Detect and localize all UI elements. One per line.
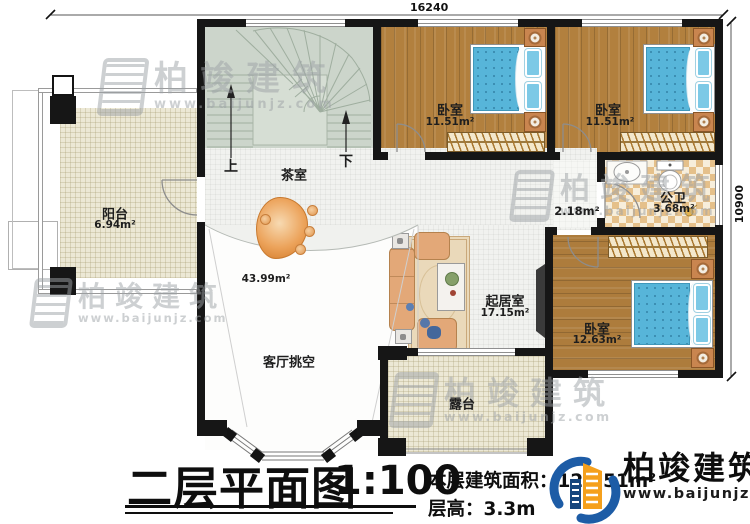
wall-living-bottom	[515, 348, 553, 356]
bedroom3-wardrobe	[608, 236, 708, 258]
bedroom1-pillow	[525, 82, 541, 110]
dimension-top: 16240	[410, 1, 448, 14]
balcony-floor	[60, 108, 197, 278]
terrace-corner-topleft	[378, 346, 407, 360]
floor-height-value: 3.3m	[484, 499, 536, 520]
bay-corner-left	[197, 420, 227, 436]
eave-line-v	[12, 90, 13, 269]
lamp-icon	[529, 116, 542, 129]
window-bathroom	[715, 165, 723, 225]
tea-room-art-dot	[295, 244, 306, 255]
bedroom3-pillow	[694, 284, 710, 312]
floor-area-label: 本层建筑面积：	[428, 471, 558, 492]
lamp-icon	[529, 31, 542, 44]
wall-bedroom3-bottom	[553, 370, 588, 378]
bedroom2-nightstand	[693, 28, 714, 47]
bedroom3-bed	[631, 280, 713, 348]
balcony-post-bottom	[50, 267, 76, 295]
label-terrace: 露台	[449, 394, 475, 413]
wall-bathroom-bottom	[545, 227, 557, 235]
window-bedroom3	[588, 370, 678, 378]
dimension-right: 10900	[733, 185, 746, 223]
sofa-main	[389, 247, 415, 331]
title-underline-2	[125, 512, 393, 514]
wall-bedroom3-left	[545, 235, 553, 455]
bedroom2-pillow	[696, 49, 711, 77]
lamp-icon	[696, 352, 709, 365]
label-bedroom1-area: 11.51m²	[426, 116, 475, 128]
bedroom1-bed	[470, 44, 546, 114]
floor-height-line: 层高：3.3m	[428, 495, 536, 521]
tea-room-art-dot	[307, 205, 318, 216]
wall-bedrooms-bottom	[425, 152, 560, 160]
label-hall-area: 2.18m²	[554, 204, 599, 218]
window-bedroom2	[582, 19, 682, 27]
bedroom3-pillow	[694, 316, 710, 344]
bedroom1-pillow	[525, 49, 541, 77]
wall-bedrooms-bottom	[373, 152, 388, 160]
bedroom1-nightstand	[524, 28, 546, 47]
bay-corner-right	[357, 420, 385, 436]
person-figure	[406, 303, 414, 311]
exterior-pad	[8, 221, 58, 270]
bedroom3-nightstand	[691, 348, 714, 368]
label-living-room-area: 17.15m²	[481, 307, 530, 319]
window-bedroom1	[418, 19, 518, 27]
label-bathroom-area: 3.68m²	[653, 203, 694, 215]
coffee-table	[437, 263, 465, 311]
balcony-column-outline	[52, 75, 74, 96]
lamp-icon	[697, 31, 710, 44]
label-bedroom2-area: 11.51m²	[586, 116, 635, 128]
label-void: 客厅挑空	[263, 352, 315, 371]
bedroom2-nightstand	[693, 112, 714, 132]
balcony-post-top	[50, 96, 76, 124]
wall-right	[715, 225, 723, 378]
wall-bedroom3-bottom	[678, 370, 723, 378]
lamp-icon	[697, 116, 710, 129]
wall-left	[197, 27, 205, 177]
label-bedroom3-area: 12.63m²	[573, 334, 622, 346]
bedroom2-pillow	[696, 82, 711, 110]
staircase-room-floor	[205, 27, 373, 160]
brand-logo: 柏竣建筑` www.baijunjz.com	[545, 452, 750, 524]
floor-plan-canvas: 柏竣建筑 www.baijunjz.com 柏竣建筑 www.baijunjz.…	[0, 0, 750, 524]
wall-bedrooms-bottom	[597, 152, 723, 160]
bedroom1-wardrobe	[447, 132, 545, 152]
side-table	[395, 329, 412, 344]
brand-logo-icon	[545, 452, 623, 524]
label-balcony-area: 6.94m²	[94, 219, 135, 231]
armchair-top	[414, 232, 450, 260]
table-plant-icon	[445, 272, 459, 286]
label-tea-room: 茶室	[281, 165, 307, 184]
person-figure	[427, 326, 441, 339]
wall-bathroom-left	[597, 160, 605, 182]
brand-name: 柏竣建筑	[623, 449, 750, 487]
window-living-terrace	[418, 348, 515, 356]
bedroom1-mattress	[473, 47, 519, 111]
tea-room-art-dot	[260, 214, 271, 225]
bedroom3-nightstand	[691, 259, 714, 279]
lamp-icon	[696, 263, 709, 276]
label-stairs-down: 下	[339, 151, 353, 171]
bedroom2-bed	[643, 44, 715, 114]
eave-line-bottom	[12, 268, 39, 269]
tea-room-art-dot	[304, 226, 315, 237]
table-flower-icon	[450, 290, 456, 296]
wall-top	[197, 19, 246, 27]
bedroom2-mattress	[646, 47, 690, 111]
title-underline	[125, 505, 416, 508]
wall-right	[715, 19, 723, 165]
side-table	[392, 233, 409, 249]
wall-bedroom1-bedroom2	[547, 19, 555, 160]
bedroom2-wardrobe	[620, 132, 715, 152]
bedroom3-mattress	[634, 283, 690, 345]
window-staircase	[246, 19, 345, 27]
brand-url: www.baijunjz.com	[623, 486, 750, 502]
floor-height-label: 层高：	[428, 499, 484, 520]
eave-line-top	[12, 90, 39, 91]
wall-top	[345, 19, 418, 27]
label-stairs-up: 上	[224, 156, 238, 176]
wall-left	[197, 222, 205, 425]
balcony-railing-left	[38, 88, 43, 292]
wall-bathroom-bottom	[591, 227, 723, 235]
wall-stair-bedroom1	[373, 27, 381, 160]
bedroom1-nightstand	[524, 112, 546, 132]
terrace-corner-bottomleft	[378, 438, 406, 456]
label-void-area: 43.99m²	[242, 273, 291, 285]
